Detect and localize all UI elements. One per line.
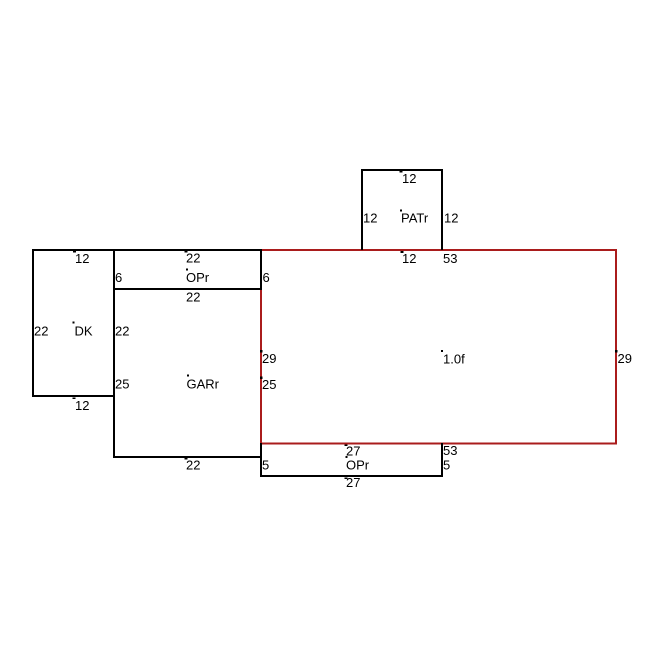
svg-text:27: 27	[346, 444, 360, 459]
svg-text:5: 5	[262, 458, 269, 473]
svg-text:GARr: GARr	[187, 377, 220, 392]
svg-text:DK: DK	[75, 324, 93, 339]
svg-text:PATr: PATr	[401, 211, 429, 226]
svg-text:12: 12	[402, 251, 416, 266]
svg-text:22: 22	[186, 458, 200, 473]
svg-text:25: 25	[115, 377, 129, 392]
svg-text:5: 5	[443, 457, 450, 472]
svg-text:22: 22	[186, 290, 200, 305]
svg-text:1.0f: 1.0f	[443, 352, 465, 367]
svg-text:22: 22	[115, 324, 129, 339]
svg-text:29: 29	[262, 351, 276, 366]
svg-text:OPr: OPr	[346, 458, 370, 473]
svg-text:12: 12	[75, 251, 89, 266]
svg-text:12: 12	[75, 398, 89, 413]
svg-text:6: 6	[115, 270, 122, 285]
svg-text:27: 27	[346, 475, 360, 490]
svg-text:12: 12	[402, 171, 416, 186]
svg-text:53: 53	[443, 443, 457, 458]
svg-text:25: 25	[262, 377, 276, 392]
svg-text:22: 22	[34, 324, 48, 339]
svg-text:OPr: OPr	[186, 270, 210, 285]
svg-text:12: 12	[444, 211, 458, 226]
svg-text:53: 53	[443, 251, 457, 266]
svg-text:12: 12	[363, 211, 377, 226]
svg-text:29: 29	[618, 351, 632, 366]
svg-text:6: 6	[263, 270, 270, 285]
svg-text:22: 22	[186, 251, 200, 266]
